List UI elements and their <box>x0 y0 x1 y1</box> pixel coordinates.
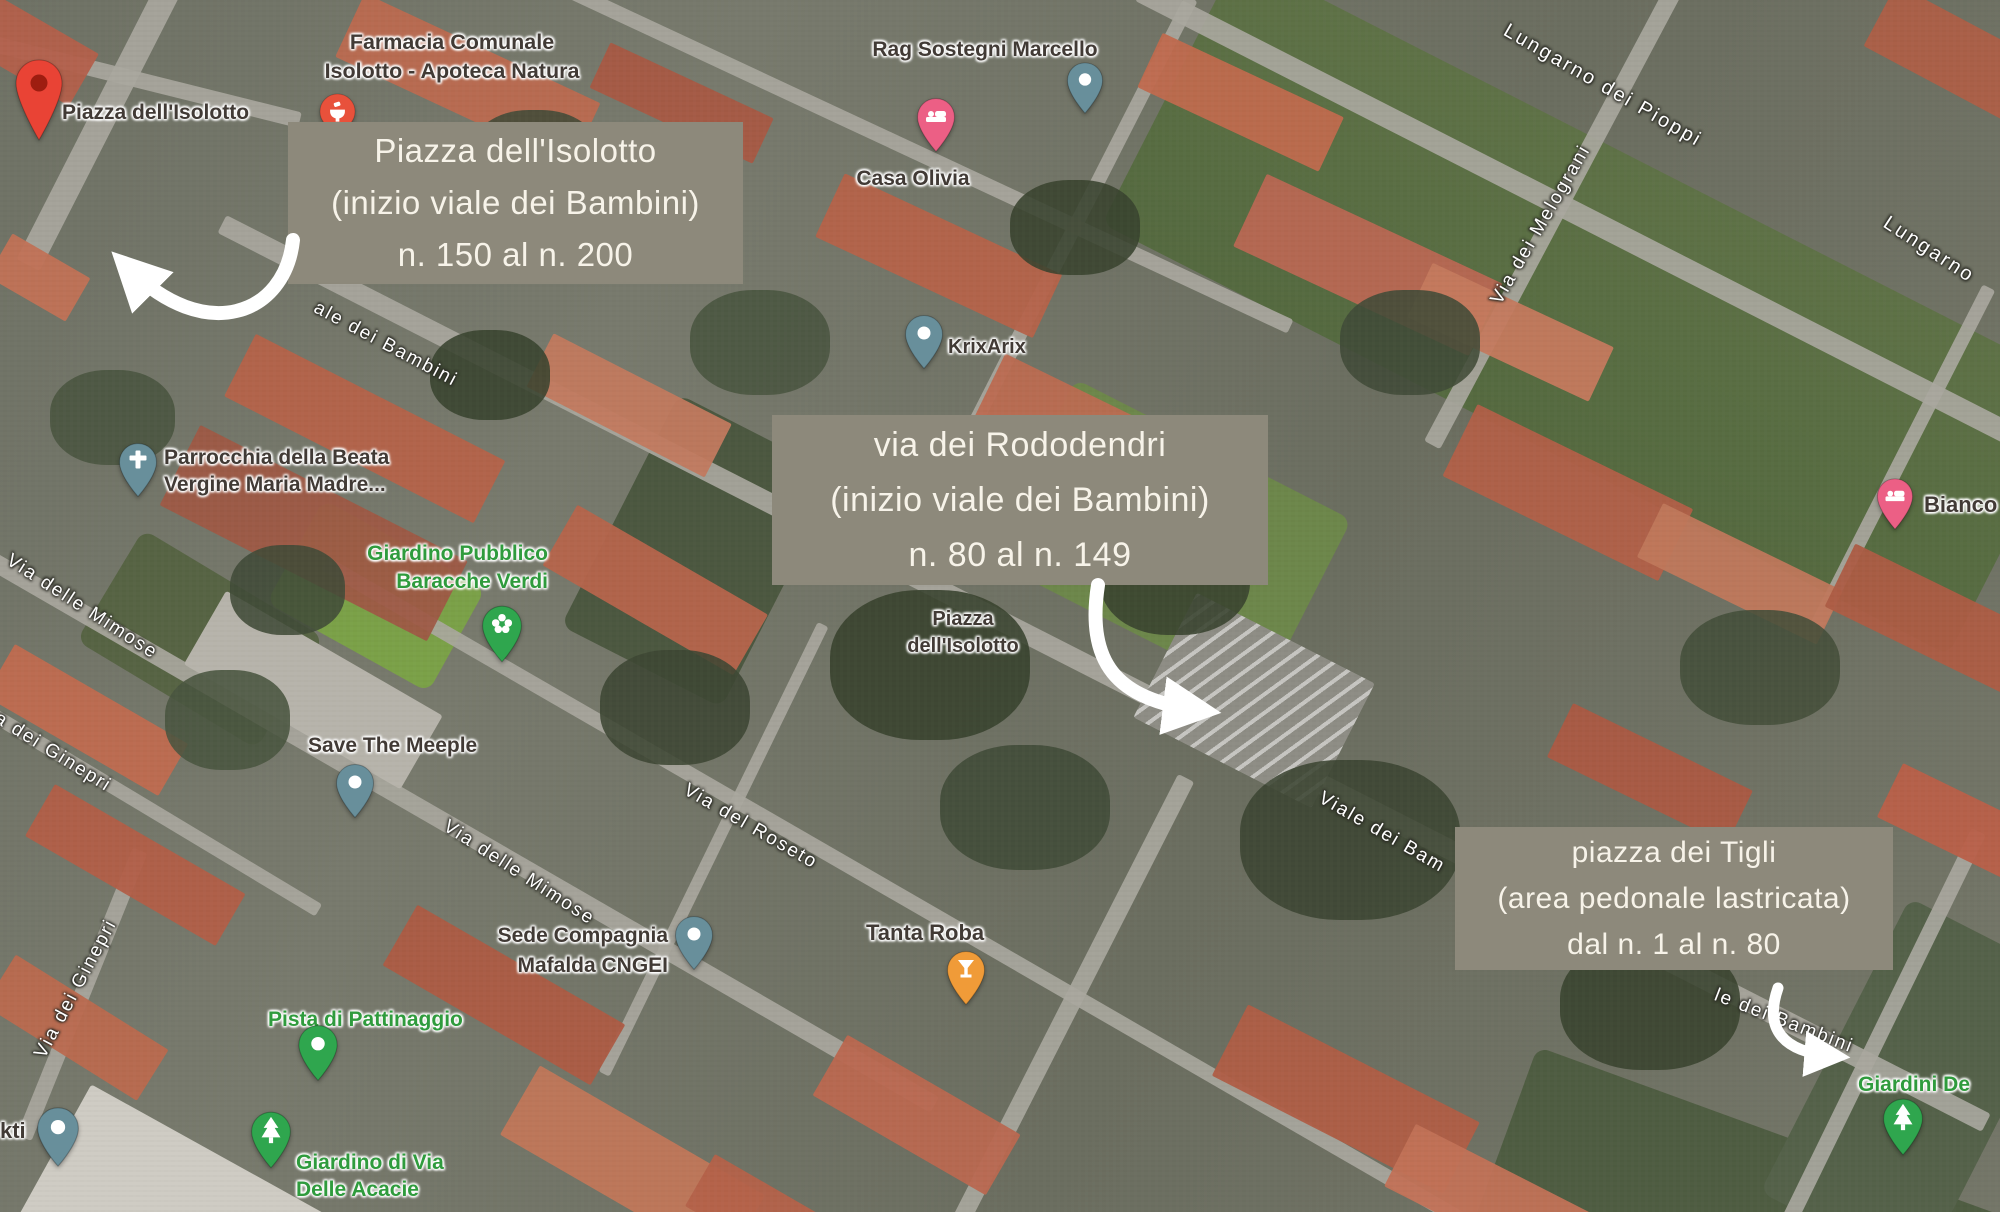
poi-label-giardino-pubblico[interactable]: Giardino Pubblico Baracche Verdi <box>318 540 548 596</box>
krixarix-pin[interactable] <box>904 314 944 370</box>
annotation-box-via-rododendri: via dei Rododendri (inizio viale dei Bam… <box>772 415 1268 585</box>
casa-olivia-pin[interactable] <box>916 97 956 153</box>
bianco-pin[interactable] <box>1876 476 1914 532</box>
annotation-line: n. 80 al n. 149 <box>772 528 1268 583</box>
poi-label-line: dell'Isolotto <box>878 633 1048 660</box>
poi-label-line: Mafalda CNGEI <box>438 951 668 981</box>
poi-label-rag-sostegni[interactable]: Rag Sostegni Marcello <box>840 36 1130 63</box>
annotation-line: piazza dei Tigli <box>1455 830 1893 876</box>
church-pin[interactable] <box>118 441 158 499</box>
annotation-box-piazza-tigli: piazza dei Tigli (area pedonale lastrica… <box>1455 827 1893 970</box>
red-destination-pin[interactable] <box>14 58 64 144</box>
poi-label-line: Sede Compagnia <box>438 921 668 951</box>
poi-label-line: Farmacia Comunale <box>282 28 622 57</box>
poi-label-giardino-acacie[interactable]: Giardino di Via Delle Acacie <box>296 1149 516 1203</box>
poi-label-krixarix[interactable]: KrixArix <box>948 334 1068 361</box>
annotation-line: n. 150 al n. 200 <box>288 229 743 281</box>
poi-label-line: Giardino di Via <box>296 1149 516 1176</box>
poi-label-parrocchia[interactable]: Parrocchia della Beata Vergine Maria Mad… <box>164 444 474 498</box>
annotation-line: (area pedonale lastricata) <box>1455 876 1893 922</box>
save-the-meeple-pin[interactable] <box>335 762 375 820</box>
sede-compagnia-pin[interactable] <box>674 914 714 972</box>
poi-label-line: Vergine Maria Madre... <box>164 471 474 498</box>
poi-label-line: Giardino Pubblico <box>318 540 548 568</box>
poi-label-giardini-de[interactable]: Giardini De <box>1858 1071 2000 1098</box>
annotation-line: (inizio viale dei Bambini) <box>288 177 743 229</box>
pista-pattinaggio-pin[interactable] <box>297 1024 339 1082</box>
giardino-acacie-pin[interactable] <box>250 1110 292 1170</box>
poi-label-piazza-isolotto-main[interactable]: Piazza dell'Isolotto <box>62 99 302 126</box>
poi-label-bianco[interactable]: Bianco <box>1924 491 2000 518</box>
tanta-roba-pin[interactable] <box>946 949 986 1007</box>
annotation-line: Piazza dell'Isolotto <box>288 125 743 177</box>
annotation-line: dal n. 1 al n. 80 <box>1455 922 1893 968</box>
poi-label-save-the-meeple[interactable]: Save The Meeple <box>308 732 548 759</box>
poi-label-farmacia[interactable]: Farmacia Comunale Isolotto - Apoteca Nat… <box>282 28 622 86</box>
satellite-map: Lungarno dei Pioppi Lungarno Via dei Mel… <box>0 0 2000 1212</box>
annotation-box-piazza-isolotto: Piazza dell'Isolotto (inizio viale dei B… <box>288 122 743 284</box>
poi-label-line: Delle Acacie <box>296 1176 516 1203</box>
poi-label-line: Piazza <box>878 606 1048 633</box>
poi-label-line: Parrocchia della Beata <box>164 444 474 471</box>
poi-label-piazza-center[interactable]: Piazza dell'Isolotto <box>878 606 1048 660</box>
giardini-de-pin[interactable] <box>1882 1096 1924 1158</box>
rag-sostegni-pin[interactable] <box>1066 61 1104 115</box>
annotation-line: via dei Rododendri <box>772 418 1268 473</box>
garden-flower-pin[interactable] <box>481 604 523 664</box>
poi-label-line: Isolotto - Apoteca Natura <box>282 57 622 86</box>
poi-label-tanta-roba[interactable]: Tanta Roba <box>866 919 1026 946</box>
poi-label-casa-olivia[interactable]: Casa Olivia <box>828 165 998 192</box>
kti-pin[interactable] <box>36 1106 80 1168</box>
annotation-line: (inizio viale dei Bambini) <box>772 473 1268 528</box>
poi-label-sede-compagnia[interactable]: Sede Compagnia Mafalda CNGEI <box>438 921 668 981</box>
poi-label-line: Baracche Verdi <box>318 568 548 596</box>
